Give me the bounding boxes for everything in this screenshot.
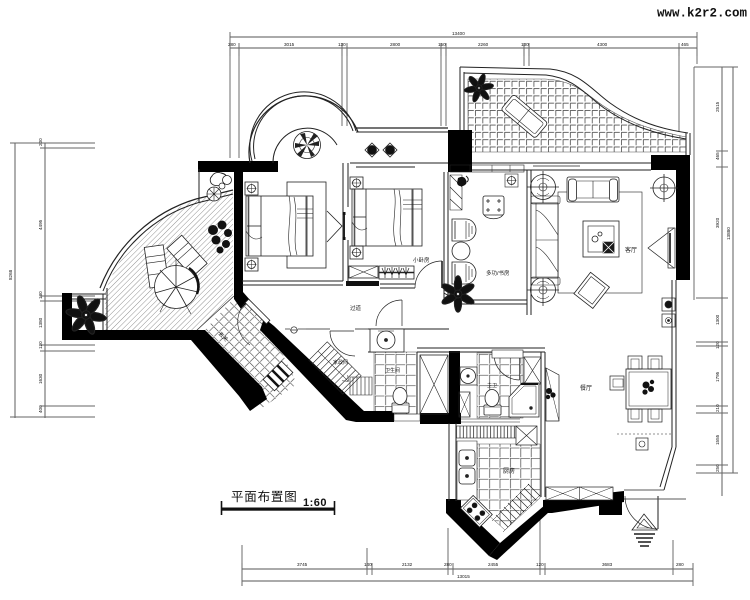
svg-text:过道: 过道	[350, 304, 362, 312]
svg-text:小卧房: 小卧房	[413, 256, 430, 264]
svg-text:2455: 2455	[488, 562, 499, 567]
svg-text:3683: 3683	[602, 562, 613, 567]
svg-text:280: 280	[444, 562, 452, 567]
svg-text:8268: 8268	[8, 269, 13, 280]
svg-text:4300: 4300	[597, 42, 608, 47]
svg-text:厨房: 厨房	[503, 467, 515, 475]
svg-text:465: 465	[715, 152, 720, 160]
svg-text:平面布置图: 平面布置图	[231, 490, 298, 504]
svg-text:1:60: 1:60	[303, 497, 327, 509]
svg-text:3745: 3745	[297, 562, 308, 567]
svg-text:www.k2r2.com: www.k2r2.com	[657, 7, 748, 21]
svg-text:120: 120	[715, 341, 720, 349]
svg-text:250: 250	[715, 464, 720, 472]
svg-text:140: 140	[364, 562, 372, 567]
svg-text:210: 210	[715, 404, 720, 412]
svg-text:280: 280	[228, 42, 236, 47]
svg-text:卫生间: 卫生间	[385, 367, 400, 374]
svg-text:1300: 1300	[715, 314, 720, 325]
svg-text:2132: 2132	[402, 562, 413, 567]
svg-text:13400: 13400	[452, 31, 465, 36]
svg-text:130: 130	[38, 291, 43, 299]
svg-text:1630: 1630	[38, 373, 43, 384]
svg-text:1555: 1555	[715, 434, 720, 445]
svg-text:120: 120	[536, 562, 544, 567]
svg-text:2515: 2515	[715, 101, 720, 112]
svg-text:多功/书房: 多功/书房	[486, 269, 510, 277]
svg-text:主卫: 主卫	[487, 382, 497, 389]
svg-text:280: 280	[676, 562, 684, 567]
svg-text:130: 130	[521, 42, 529, 47]
svg-text:130: 130	[338, 42, 346, 47]
svg-text:465: 465	[681, 42, 689, 47]
svg-text:4495: 4495	[38, 219, 43, 230]
svg-text:200: 200	[38, 138, 43, 146]
svg-text:3920: 3920	[715, 217, 720, 228]
svg-text:150: 150	[438, 42, 446, 47]
svg-text:13880: 13880	[726, 227, 731, 240]
svg-text:1380: 1380	[38, 317, 43, 328]
svg-text:客厅: 客厅	[625, 246, 637, 254]
svg-text:13015: 13015	[457, 574, 470, 579]
svg-text:1795: 1795	[715, 371, 720, 382]
svg-text:2800: 2800	[390, 42, 401, 47]
svg-text:2260: 2260	[478, 42, 489, 47]
svg-text:家政间: 家政间	[333, 359, 348, 366]
svg-text:餐厅: 餐厅	[580, 384, 592, 392]
svg-text:120: 120	[38, 341, 43, 349]
svg-text:3015: 3015	[284, 42, 295, 47]
svg-text:400: 400	[38, 405, 43, 413]
